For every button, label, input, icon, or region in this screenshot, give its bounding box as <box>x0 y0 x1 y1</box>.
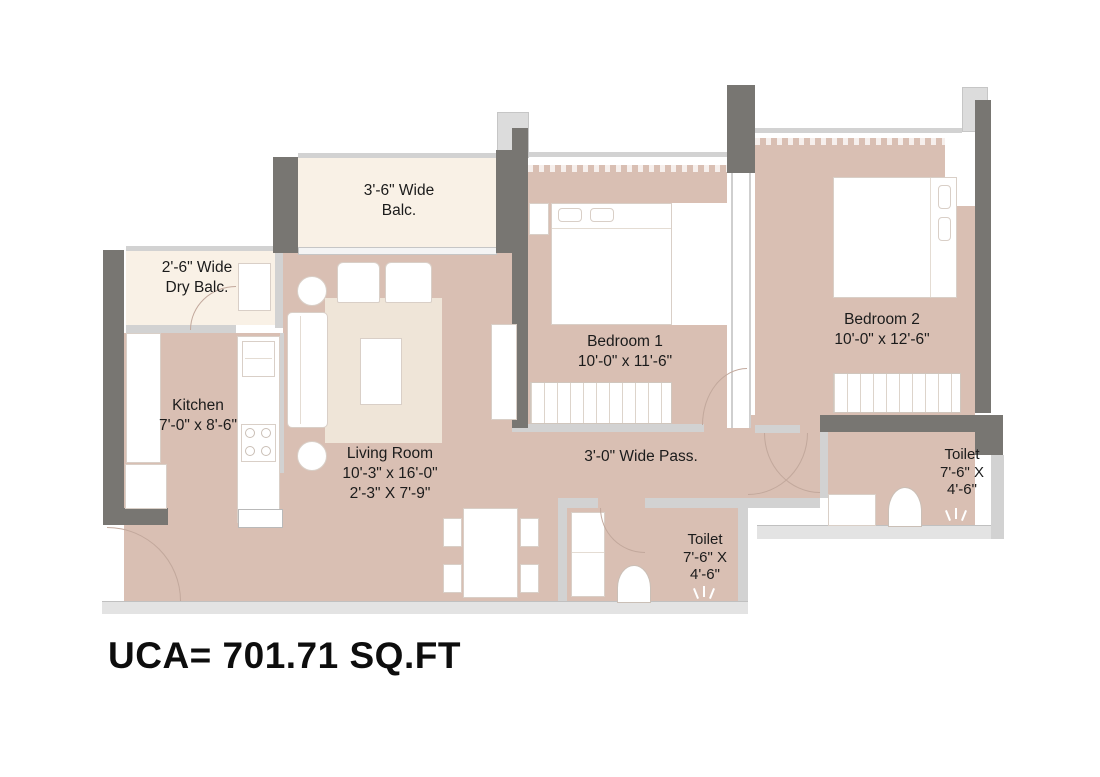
bedroom2-sill-hatch <box>755 138 948 145</box>
living-room-label: Living Room 10'-3" x 16'-0" 2'-3" X 7'-9… <box>342 444 437 504</box>
bedroom1-bottom-wall <box>512 424 704 432</box>
bed2-pillow-1 <box>938 185 951 209</box>
wardrobe-1 <box>530 382 672 424</box>
toilet2-label: Toilet 7'-6" X 4'-6" <box>940 446 984 499</box>
bedroom1-window-bay <box>672 203 727 325</box>
bedroom1-window-sill <box>512 152 727 157</box>
kitchen-left-wall <box>103 250 124 512</box>
burner-3 <box>245 446 255 456</box>
toilet2-wc <box>888 487 922 527</box>
washing-machine <box>238 263 271 311</box>
toilet2-left-wall <box>820 432 828 498</box>
area-text: UCA= 701.71 SQ.FT <box>108 635 461 677</box>
toilet2-bottom-wall <box>757 525 1004 539</box>
bedroom2-bottom-wall-stub <box>755 425 800 433</box>
armchair-2 <box>385 262 432 303</box>
burner-1 <box>245 428 255 438</box>
dining-chair-4 <box>520 564 539 593</box>
tv-unit <box>491 324 517 420</box>
toilet1-unit-divider <box>572 552 604 553</box>
armchair-1 <box>337 262 380 303</box>
dining-chair-2 <box>443 564 462 593</box>
toilet1-label: Toilet 7'-6" X 4'-6" <box>683 531 727 584</box>
passage-label: 3'-0" Wide Pass. <box>584 447 698 467</box>
sink-divider-line <box>245 358 272 359</box>
entrance-wall-foot <box>103 508 168 525</box>
dining-chair-3 <box>520 518 539 547</box>
toilet2-basin <box>828 494 876 526</box>
utility-shaft <box>238 509 283 528</box>
bed2-sheet-line <box>930 178 931 297</box>
bed1-sheet-line <box>552 228 671 229</box>
bedroom2-right-wall <box>975 100 991 413</box>
dry-balcony-right-wall <box>275 250 283 328</box>
balcony-sliding-door <box>298 247 497 255</box>
coffee-table <box>360 338 402 405</box>
sofa-cushion-line <box>300 316 301 424</box>
bed1-pillow-2 <box>590 208 614 222</box>
side-table-bottom <box>297 441 327 471</box>
dry-balcony-label: 2'-6" Wide Dry Balc. <box>162 258 232 298</box>
bed2-pillow-2 <box>938 217 951 241</box>
fridge <box>125 464 167 509</box>
balcony-label: 3'-6" Wide Balc. <box>364 181 434 221</box>
kitchen-counter-left <box>126 333 161 463</box>
kitchen-living-divider <box>280 333 284 473</box>
toilet1-top-wall-right <box>645 498 748 508</box>
wardrobe-2 <box>833 373 961 413</box>
dry-balcony-top-wall <box>126 246 283 251</box>
toilet2-right-wall <box>991 455 1004 539</box>
toilet1-left-wall <box>558 498 567 602</box>
side-table-top <box>297 276 327 306</box>
bedroom2-label: Bedroom 2 10'-0" x 12'-6" <box>834 310 929 350</box>
nightstand-1 <box>529 203 549 235</box>
toilet1-shower-tick-2 <box>703 586 705 597</box>
vestibule-step-wall <box>748 498 820 508</box>
toilet1-shower-basin-unit <box>571 512 605 597</box>
toilet2-shower-tick-2 <box>955 508 957 519</box>
bed1-pillow-1 <box>558 208 582 222</box>
balcony-top-wall <box>298 153 497 158</box>
burner-4 <box>261 446 271 456</box>
toilet1-wc <box>617 565 651 603</box>
mid-pillar <box>727 85 755 173</box>
floor-plan: 3'-6" Wide Balc. 2'-6" Wide Dry Balc. Ki… <box>0 0 1100 777</box>
balcony-left-pillar <box>273 157 298 253</box>
bedroom1-sill-hatch <box>528 165 727 172</box>
burner-2 <box>261 428 271 438</box>
kitchen-label: Kitchen 7'-0" x 8'-6" <box>159 396 237 436</box>
dining-table <box>463 508 518 598</box>
toilet1-right-wall <box>738 508 748 613</box>
bedroom1-label: Bedroom 1 10'-0" x 11'-6" <box>578 332 672 372</box>
dining-chair-1 <box>443 518 462 547</box>
bottom-outer-wall <box>102 601 748 614</box>
bedroom2-window-sill <box>755 128 962 133</box>
kitchen-sink <box>242 341 275 377</box>
sofa <box>287 312 328 428</box>
